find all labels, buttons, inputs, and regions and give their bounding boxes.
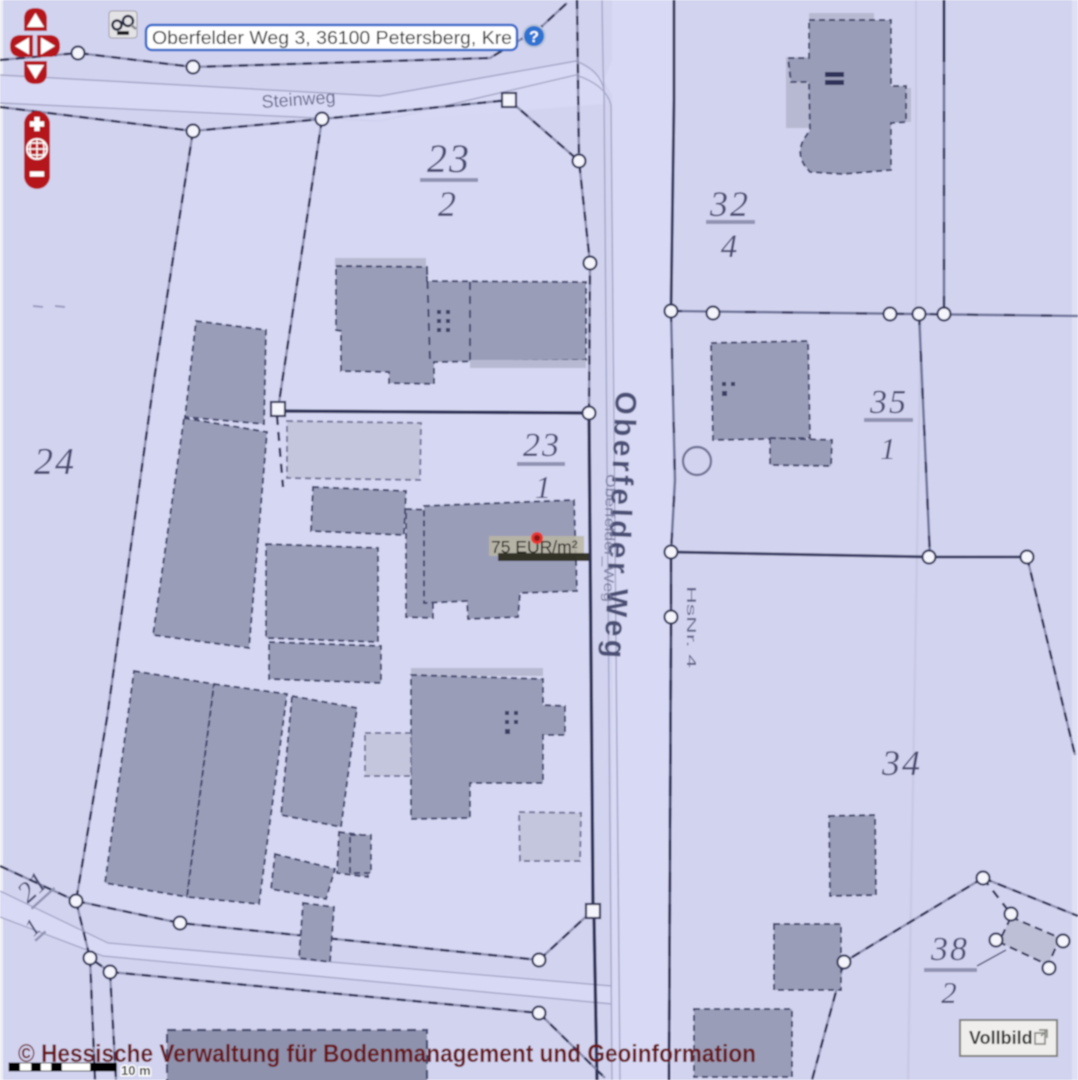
svg-text:2: 2: [941, 975, 957, 1010]
svg-text:34: 34: [881, 743, 922, 783]
svg-text:35: 35: [869, 384, 908, 421]
svg-text:Oberfelder Weg 3, 36100 Peters: Oberfelder Weg 3, 36100 Petersberg, Kre: [152, 28, 512, 48]
svg-text:Oberfelder_Weg: Oberfelder_Weg: [601, 474, 619, 602]
svg-text:23: 23: [523, 427, 561, 464]
svg-text:1: 1: [535, 469, 551, 505]
svg-text:HsNr. 4: HsNr. 4: [684, 586, 699, 668]
svg-text:38: 38: [930, 931, 969, 968]
svg-text:1: 1: [880, 431, 896, 466]
svg-text:32: 32: [709, 184, 750, 224]
svg-text:23: 23: [427, 136, 471, 181]
svg-text:2: 2: [438, 184, 456, 224]
svg-text:24: 24: [34, 441, 76, 483]
svg-text:?: ?: [529, 29, 539, 46]
svg-text:4: 4: [721, 229, 738, 265]
svg-text:Vollbild: Vollbild: [969, 1028, 1033, 1048]
svg-text:10 m: 10 m: [121, 1063, 151, 1078]
